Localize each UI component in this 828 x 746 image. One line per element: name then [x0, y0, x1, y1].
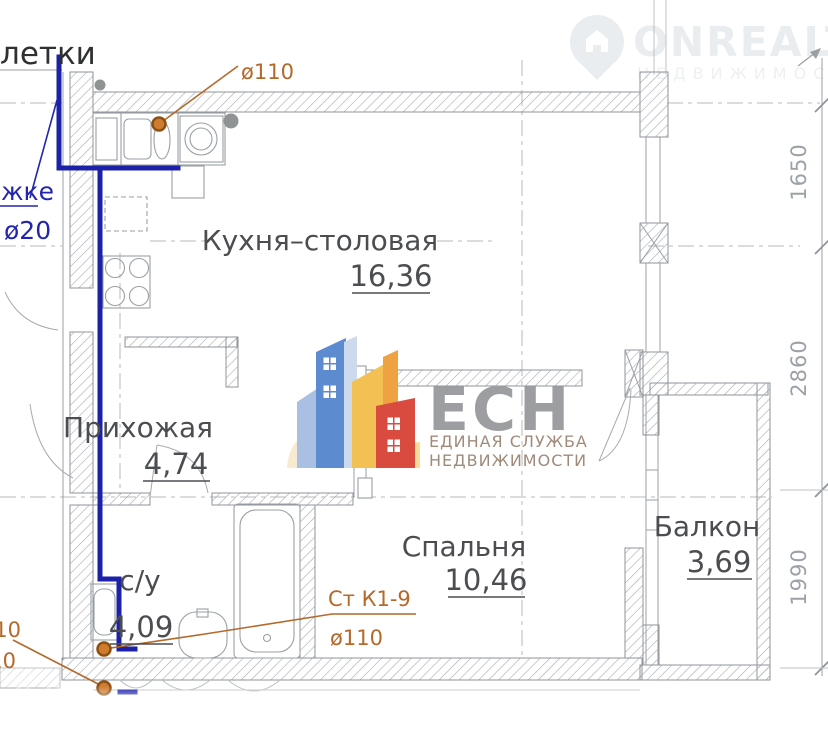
left-cut-label-2: ø110: [0, 649, 16, 673]
vent-shaft-dashed: [105, 197, 147, 231]
room-bathroom-area: 4,09: [109, 610, 174, 644]
room-bedroom-name: Спальня: [402, 530, 527, 563]
walls: [0, 0, 770, 688]
floorplan-screenshot: ONREALT НЕДВИЖИМОСТЬ: [0, 0, 828, 746]
room-bathroom-name: с/у: [119, 564, 160, 597]
room-balcony-area: 3,69: [687, 545, 752, 579]
floorplan-svg: ONREALT НЕДВИЖИМОСТЬ: [0, 0, 828, 746]
dimension-1650: 1650: [787, 143, 811, 200]
room-kitchen-name: Кухня–столовая: [202, 224, 439, 257]
room-hallway-area: 4,74: [144, 447, 209, 481]
bottom-whitespace: [0, 706, 828, 746]
sewer-top-label: ø110: [241, 60, 294, 84]
ecn-line2-text: НЕДВИЖИМОСТИ: [429, 451, 587, 470]
room-kitchen-area: 16,36: [349, 259, 432, 293]
kitchen-sink: [124, 119, 151, 159]
ecn-watermark: ЕСН ЕДИНАЯ СЛУЖБА НЕДВИЖИМОСТИ: [287, 336, 588, 470]
water-diameter-text: ø20: [4, 216, 51, 245]
stair-label: летки: [0, 36, 96, 72]
kitchen-cabinet: [96, 118, 117, 160]
riser-dot-small: [95, 80, 106, 91]
onrealt-brand-text: ONREALT: [633, 18, 828, 66]
sewer-bottom-label: ø110: [330, 626, 383, 650]
kitchen-fixtures: [93, 113, 225, 308]
ecn-line1-text: ЕДИНАЯ СЛУЖБА: [429, 432, 588, 451]
riser-dot-large: [224, 114, 239, 129]
water-note-text: жке: [1, 177, 54, 206]
ecn-buildings-icon: [287, 336, 420, 468]
dimension-1990: 1990: [787, 548, 811, 605]
room-bedroom-area: 10,46: [444, 563, 527, 597]
dimension-chain: 1650 2860 1990: [780, 48, 828, 676]
room-balcony-name: Балкон: [654, 510, 761, 543]
onrealt-watermark: ONREALT НЕДВИЖИМОСТЬ: [570, 15, 828, 83]
entry-door-arc: [5, 292, 58, 330]
room-hallway-name: Прихожая: [63, 411, 213, 444]
kitchen-table: [103, 256, 150, 308]
dimension-2860: 2860: [787, 339, 811, 396]
bottom-fade: [0, 686, 828, 708]
onrealt-pin-icon: [570, 15, 624, 80]
sewer-mid-marker: [98, 643, 111, 656]
sewer-top-marker: [153, 118, 166, 131]
riser-label: Ст К1-9: [328, 587, 411, 611]
left-cut-label-1: ø110: [0, 618, 21, 642]
